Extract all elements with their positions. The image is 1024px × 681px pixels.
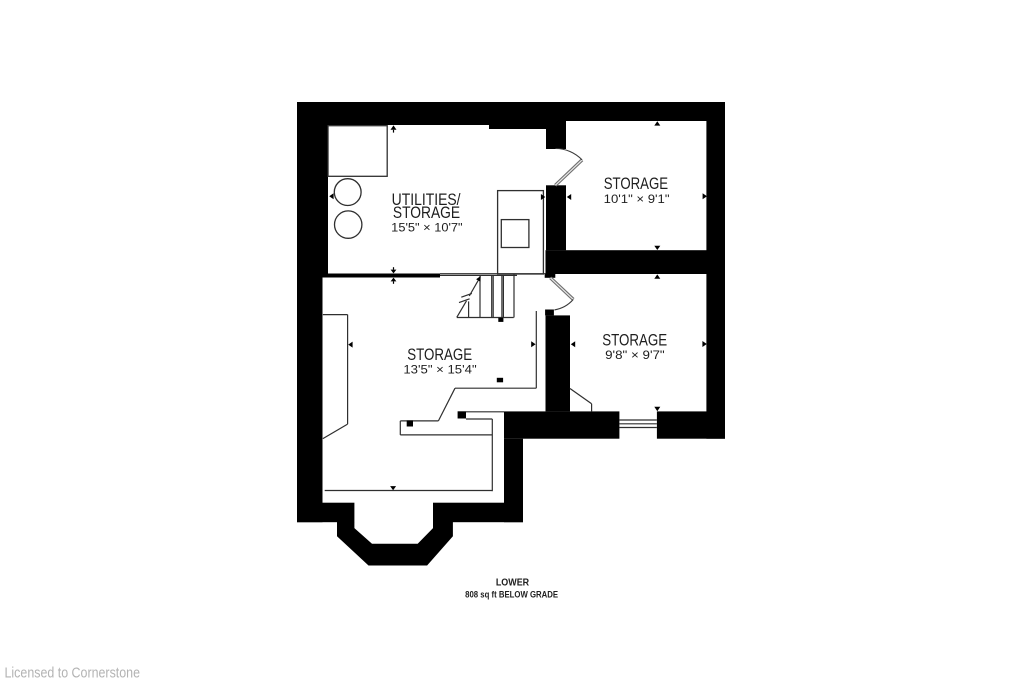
svg-text:13'5" × 15'4": 13'5" × 15'4": [403, 363, 476, 377]
svg-text:9'8" × 9'7": 9'8" × 9'7": [605, 348, 665, 362]
svg-text:STORAGE: STORAGE: [602, 332, 667, 350]
svg-text:10'1" × 9'1": 10'1" × 9'1": [604, 192, 670, 206]
svg-text:Licensed to Cornerstone: Licensed to Cornerstone: [5, 666, 141, 681]
svg-text:LOWER: LOWER: [496, 577, 530, 589]
svg-text:STORAGE: STORAGE: [407, 346, 472, 364]
svg-text:STORAGE: STORAGE: [604, 175, 669, 193]
svg-text:15'5" × 10'7": 15'5" × 10'7": [391, 221, 462, 235]
svg-text:808 sq ft BELOW GRADE: 808 sq ft BELOW GRADE: [465, 590, 558, 600]
svg-text:STORAGE: STORAGE: [393, 204, 460, 222]
